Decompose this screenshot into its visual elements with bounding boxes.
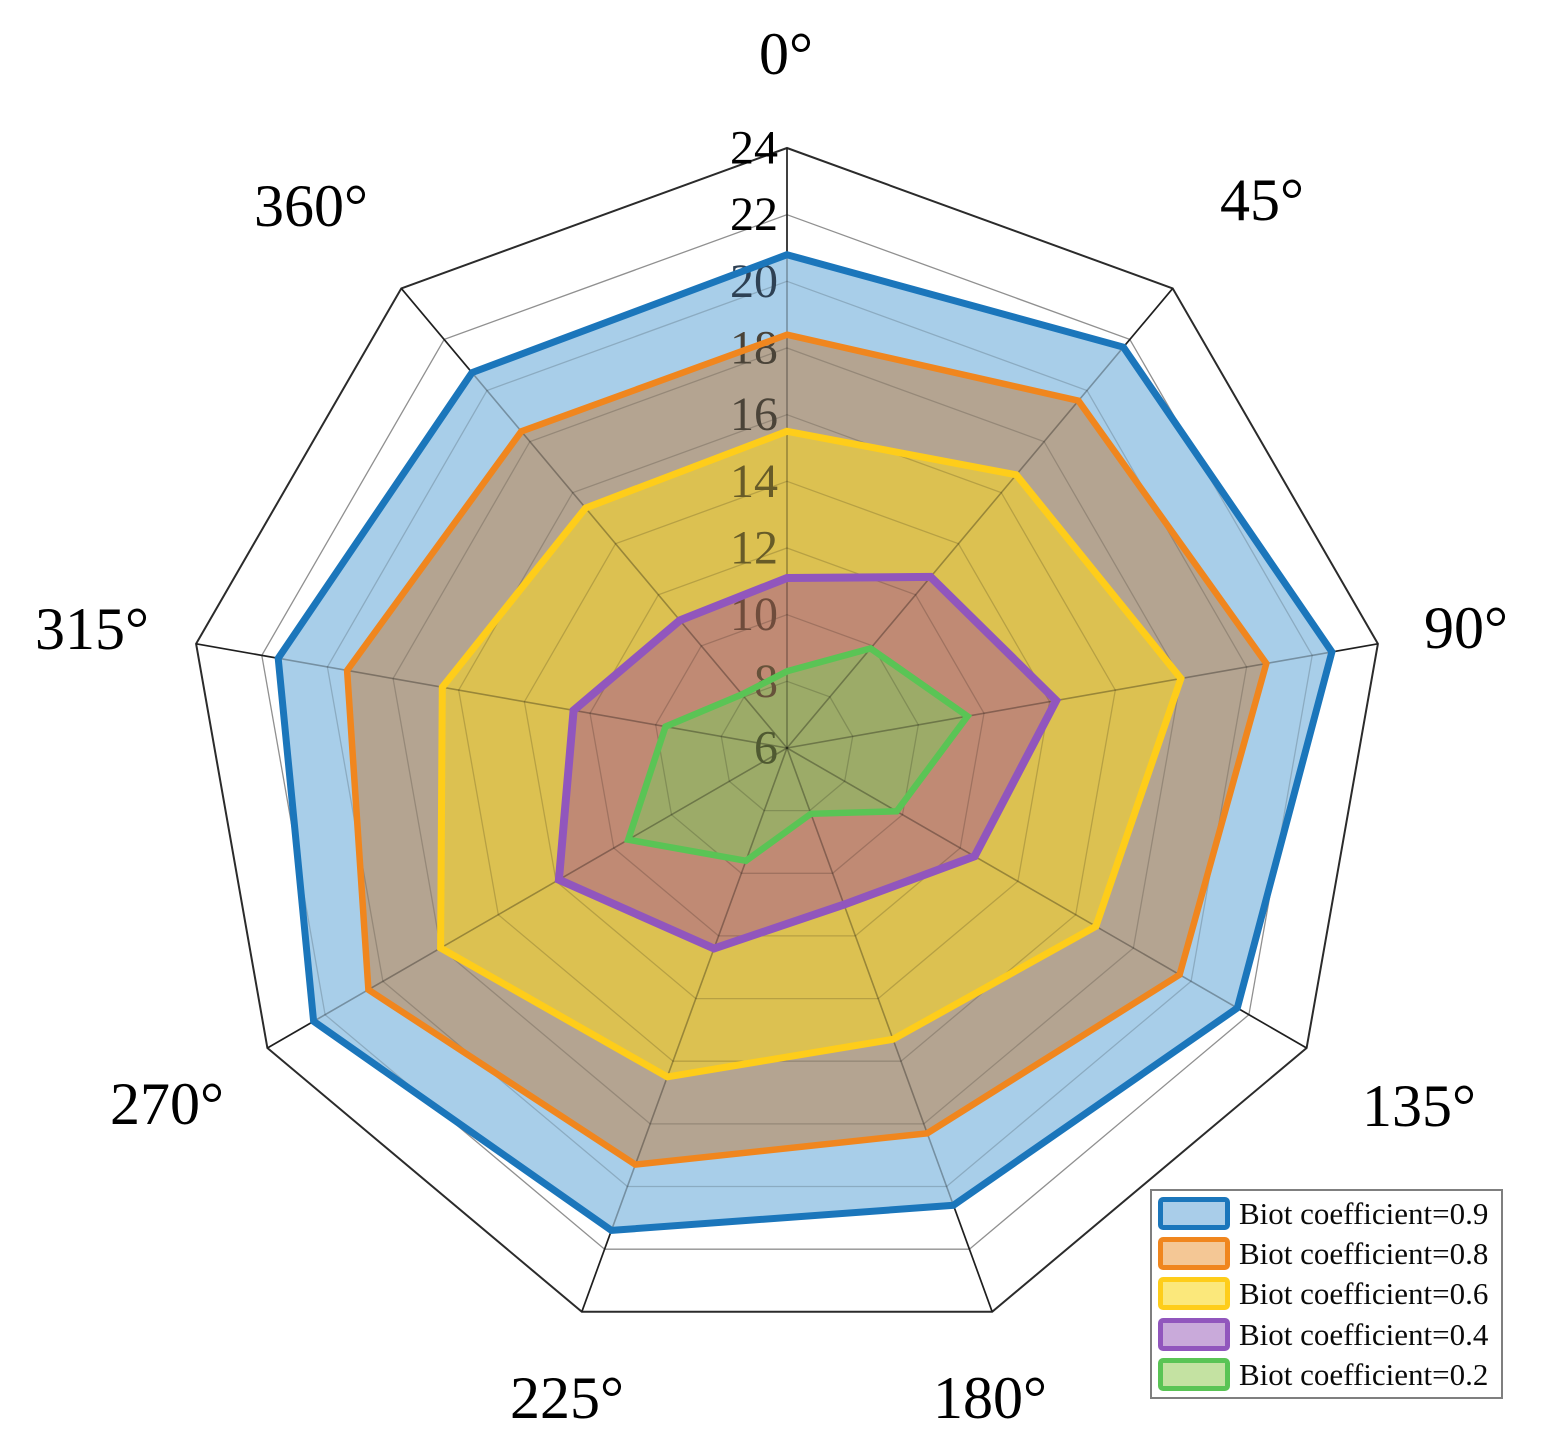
legend-swatch — [1158, 1237, 1230, 1270]
angle-label-180-: 180° — [933, 1365, 1047, 1431]
angle-label-315-: 315° — [35, 596, 149, 662]
angle-label-225-: 225° — [510, 1365, 624, 1431]
legend: Biot coefficient=0.9Biot coefficient=0.8… — [1150, 1189, 1503, 1399]
angle-label-360-: 360° — [254, 173, 368, 239]
legend-item-biot-coefficient-0.2: Biot coefficient=0.2 — [1158, 1355, 1501, 1395]
legend-label: Biot coefficient=0.2 — [1239, 1359, 1488, 1390]
legend-label: Biot coefficient=0.9 — [1239, 1198, 1488, 1229]
angle-label-135-: 135° — [1362, 1073, 1476, 1139]
angle-label-90-: 90° — [1424, 595, 1508, 661]
legend-label: Biot coefficient=0.8 — [1239, 1238, 1488, 1269]
legend-item-biot-coefficient-0.9: Biot coefficient=0.9 — [1158, 1193, 1501, 1233]
legend-label: Biot coefficient=0.4 — [1239, 1319, 1488, 1350]
radial-tick-label-24: 24 — [730, 122, 778, 175]
angle-label-270-: 270° — [110, 1071, 224, 1137]
legend-swatch — [1158, 1318, 1230, 1351]
legend-swatch — [1158, 1197, 1230, 1230]
radial-tick-label-6: 6 — [754, 722, 778, 775]
radial-tick-label-22: 22 — [730, 188, 778, 241]
legend-item-biot-coefficient-0.8: Biot coefficient=0.8 — [1158, 1234, 1501, 1274]
legend-swatch — [1158, 1277, 1230, 1310]
legend-item-biot-coefficient-0.6: Biot coefficient=0.6 — [1158, 1274, 1501, 1314]
radial-tick-label-16: 16 — [730, 388, 778, 441]
legend-item-biot-coefficient-0.4: Biot coefficient=0.4 — [1158, 1314, 1501, 1354]
angle-label-45-: 45° — [1220, 167, 1304, 233]
radar-chart-figure: 2422201816141210860°45°90°135°180°225°27… — [0, 0, 1546, 1455]
radial-tick-label-12: 12 — [730, 522, 778, 575]
angle-label-0-: 0° — [759, 21, 813, 87]
legend-label: Biot coefficient=0.6 — [1239, 1278, 1488, 1309]
legend-swatch — [1158, 1358, 1230, 1391]
radial-tick-label-14: 14 — [730, 455, 778, 508]
